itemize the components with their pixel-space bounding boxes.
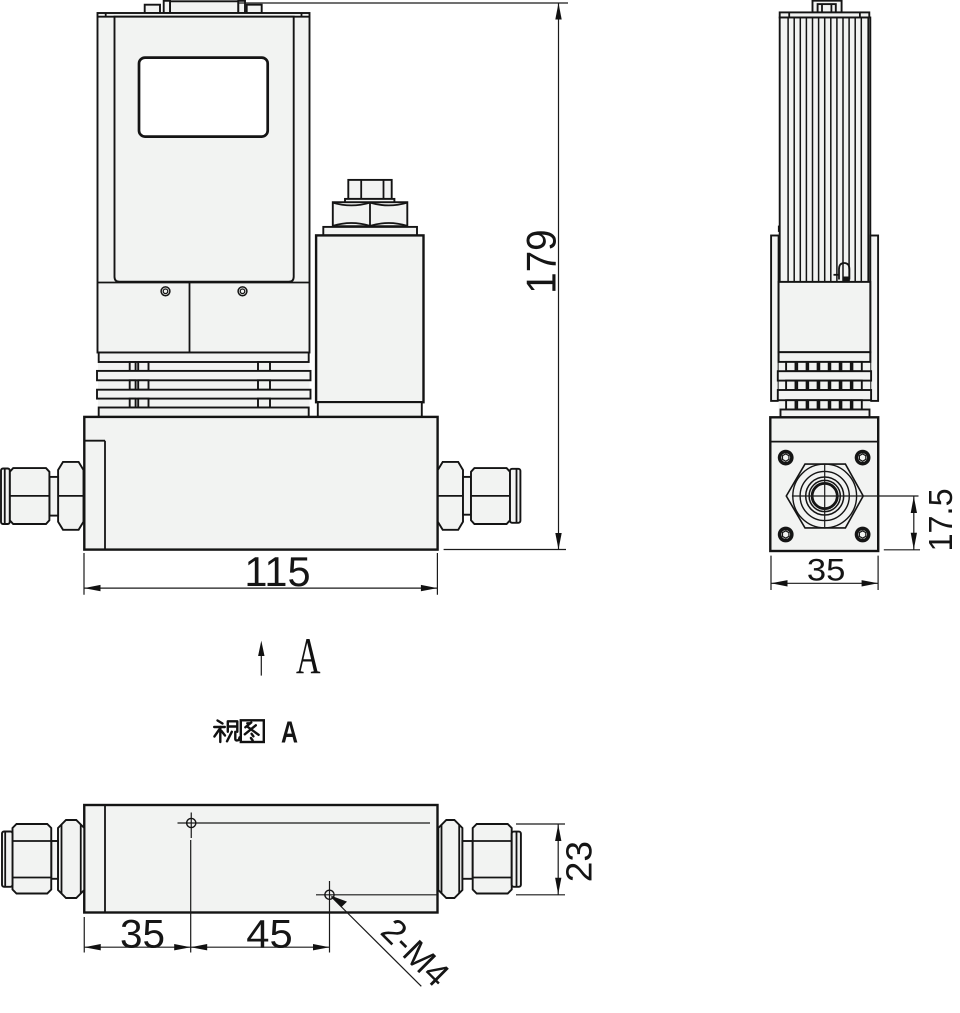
svg-text:17.5: 17.5: [922, 488, 959, 551]
svg-text:45: 45: [246, 912, 292, 956]
svg-text:A: A: [296, 629, 321, 686]
svg-text:179: 179: [518, 230, 565, 294]
svg-text:115: 115: [244, 548, 310, 595]
svg-text:A: A: [281, 715, 298, 750]
svg-text:23: 23: [559, 841, 600, 882]
svg-text:35: 35: [807, 552, 846, 588]
svg-text:2-M4: 2-M4: [373, 911, 456, 994]
svg-text:35: 35: [120, 912, 165, 956]
